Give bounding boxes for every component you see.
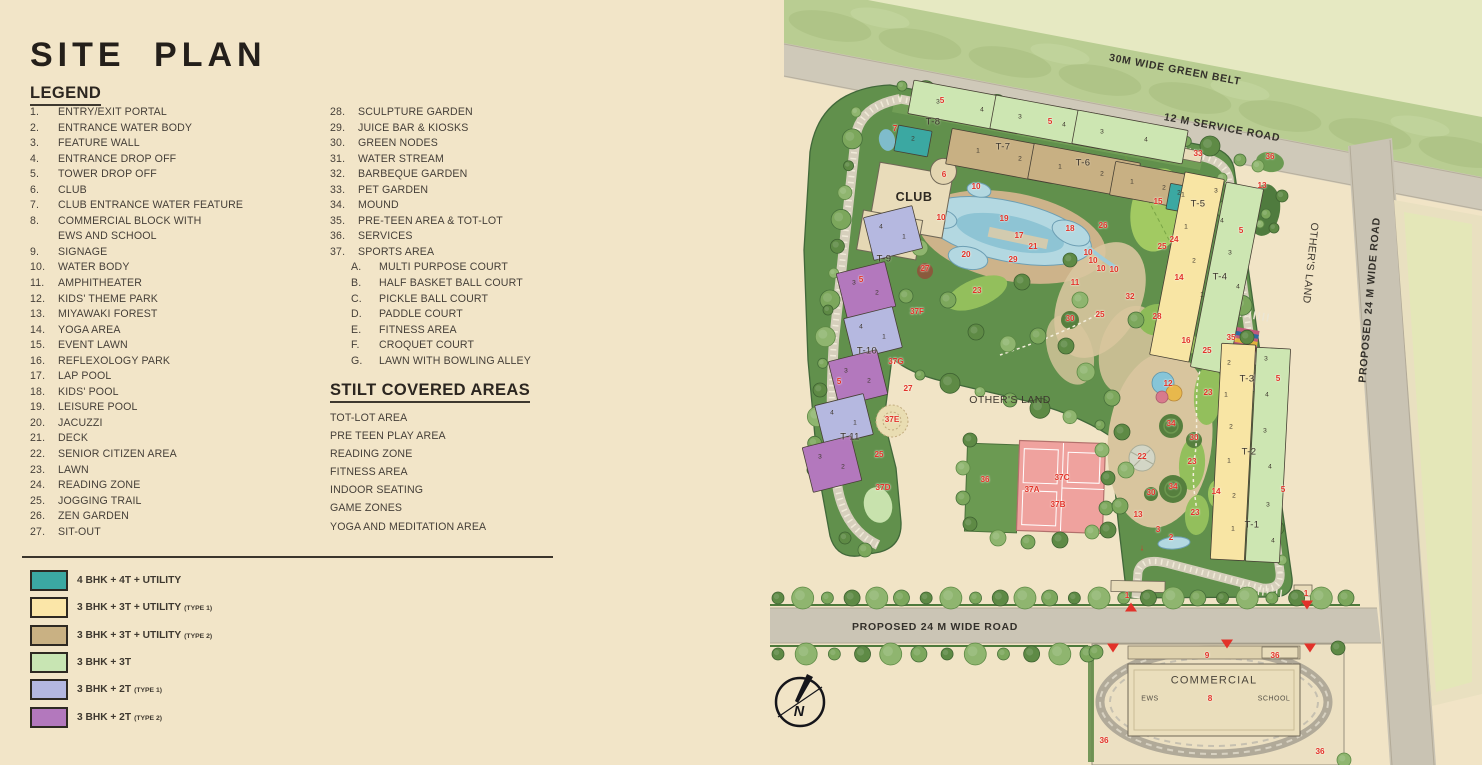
legend-item: 8.COMMERCIAL BLOCK WITH: [30, 215, 325, 231]
map-label-unit: 3: [844, 369, 848, 376]
map-label-unit: 3: [818, 455, 822, 462]
map-label-place: OTHER'S LAND: [969, 395, 1050, 406]
map-label-red: 37B: [1050, 501, 1065, 509]
legend-item: 19.LEISURE POOL: [30, 401, 325, 417]
map-label-unit: 3: [1264, 357, 1268, 364]
legend-item: EWS AND SCHOOL: [30, 230, 325, 246]
map-label-red: 36: [1099, 737, 1108, 745]
unit-type-swatch: [30, 597, 68, 618]
stilt-item: INDOOR SEATING: [330, 484, 530, 502]
map-label-red: 22: [1137, 453, 1146, 461]
map-label-red: 28: [1152, 313, 1161, 321]
map-label-road: 30M WIDE GREEN BELT: [1108, 53, 1242, 88]
map-label-red: 5: [837, 378, 842, 386]
map-label-place: OTHER'S LAND: [1301, 222, 1320, 304]
map-label-red: 5: [859, 276, 864, 284]
map-label-red: 36: [980, 476, 989, 484]
legend-item: 33.PET GARDEN: [330, 184, 575, 200]
legend-item: 24.READING ZONE: [30, 479, 325, 495]
map-label-red: 29: [1008, 256, 1017, 264]
map-label-unit: 2: [911, 137, 915, 144]
map-label-tower: T-8: [926, 117, 941, 127]
map-label-red: 5: [1048, 118, 1053, 126]
map-label-red: 25: [874, 451, 883, 459]
map-label-red: 1: [1125, 592, 1130, 600]
legend-item: 21.DECK: [30, 432, 325, 448]
unit-type-row: 3 BHK + 2T(TYPE 2): [30, 703, 212, 730]
map-label-red: 26: [1098, 222, 1107, 230]
legend-item: G.LAWN WITH BOWLING ALLEY: [351, 355, 575, 371]
map-label-red: 30: [1146, 489, 1155, 497]
unit-type-row: 3 BHK + 3T + UTILITY(TYPE 2): [30, 622, 212, 649]
stilt-item: TOT-LOT AREA: [330, 412, 530, 430]
map-label-red: 37A: [1024, 486, 1039, 494]
legend-item: 14.YOGA AREA: [30, 324, 325, 340]
legend-item: 22.SENIOR CITIZEN AREA: [30, 448, 325, 464]
map-label-unit: 2: [875, 291, 879, 298]
unit-type-row: 3 BHK + 2T(TYPE 1): [30, 676, 212, 703]
map-label-red: 36: [1315, 748, 1324, 756]
legend-item: 17.LAP POOL: [30, 370, 325, 386]
map-label-arrow: ↓: [1140, 544, 1145, 553]
map-label-red: 23: [1203, 389, 1212, 397]
map-label-unit: 2: [1100, 172, 1104, 179]
legend-item: 7.CLUB ENTRANCE WATER FEATURE: [30, 199, 325, 215]
map-label-red: 25: [1157, 243, 1166, 251]
map-label-unit: 2: [841, 465, 845, 472]
legend-item: 31.WATER STREAM: [330, 153, 575, 169]
map-label-tower: T-7: [996, 142, 1011, 152]
map-label-unit: 1: [1058, 165, 1062, 172]
map-label-red: 17: [1014, 232, 1023, 240]
legend-item: 12.KIDS' THEME PARK: [30, 293, 325, 309]
map-label-road: PROPOSED 24 M WIDE ROAD: [852, 622, 1018, 633]
map-label-red: 3: [1156, 526, 1161, 534]
map-label-road: PROPOSED 24 M WIDE ROAD: [1358, 217, 1383, 383]
legend-item: 9.SIGNAGE: [30, 246, 325, 262]
map-label-unit: 3: [1100, 130, 1104, 137]
map-label-red: 19: [999, 215, 1008, 223]
legend-item: 34.MOUND: [330, 199, 575, 215]
legend-item: 23.LAWN: [30, 464, 325, 480]
legend-item: F.CROQUET COURT: [351, 339, 575, 355]
map-label-red: 23: [1190, 509, 1199, 517]
map-label-tower: T-2: [1242, 447, 1257, 457]
map-label-small: EWS: [1141, 696, 1158, 703]
map-label-unit: 4: [1265, 393, 1269, 400]
map-label-red: 14: [1211, 488, 1220, 496]
map-label-red: 13: [1133, 511, 1142, 519]
map-label-road: 12 M SERVICE ROAD: [1163, 112, 1281, 144]
map-label-red: 8: [1208, 695, 1213, 703]
map-label-unit: 1: [1200, 293, 1204, 300]
legend-item: 6.CLUB: [30, 184, 325, 200]
map-label-red: 37E: [885, 416, 900, 424]
map-label-unit: 2: [1232, 494, 1236, 501]
unit-type-row: 4 BHK + 4T + UTILITY: [30, 567, 212, 594]
map-label-tower: T-5: [1191, 199, 1206, 209]
stilt-covered-areas: STILT COVERED AREAS TOT-LOT AREAPRE TEEN…: [330, 381, 530, 539]
map-label-red: 34: [1166, 420, 1175, 428]
map-label-unit: 3: [1266, 503, 1270, 510]
map-label-red: 34: [1168, 483, 1177, 491]
map-label-unit: 4: [1062, 123, 1066, 130]
legend-item: 3.FEATURE WALL: [30, 137, 325, 153]
map-label-unit: 2: [1227, 361, 1231, 368]
map-label-unit: 4: [1236, 285, 1240, 292]
map-label-red: 6: [942, 171, 947, 179]
entry-marker-triangle: [1301, 601, 1313, 610]
legend-item: A.MULTI PURPOSE COURT: [351, 261, 575, 277]
map-label-unit: 3: [1214, 189, 1218, 196]
map-label-unit: 4: [830, 411, 834, 418]
legend-item: 36.SERVICES: [330, 230, 575, 246]
legend-item: 30.GREEN NODES: [330, 137, 575, 153]
map-label-unit: 3: [1263, 429, 1267, 436]
map-label-red: 30: [1189, 434, 1198, 442]
unit-type-row: 3 BHK + 3T + UTILITY(TYPE 1): [30, 594, 212, 621]
map-label-unit: 2: [1229, 425, 1233, 432]
site-plan-page: SITE PLAN LEGEND 1.ENTRY/EXIT PORTAL2.EN…: [0, 0, 1482, 765]
legend-item: 18.KIDS' POOL: [30, 386, 325, 402]
map-label-red: 10: [971, 183, 980, 191]
map-label-red: 13: [1257, 182, 1266, 190]
map-label-red: 5: [1281, 486, 1286, 494]
map-label-red: 24: [1169, 236, 1178, 244]
map-label-tower: T-9: [877, 254, 892, 264]
map-label-unit: 3: [936, 100, 940, 107]
map-label-red: 30: [1065, 315, 1074, 323]
entry-marker-triangle: [1304, 644, 1316, 653]
map-label-red: 21: [1028, 243, 1037, 251]
map-label-tower: T-11: [840, 432, 860, 442]
map-label-red: 10: [1096, 265, 1105, 273]
map-label-unit: 4: [1268, 465, 1272, 472]
map-label-unit: 2: [1192, 259, 1196, 266]
legend-item: 5.TOWER DROP OFF: [30, 168, 325, 184]
map-label-red: 37C: [1054, 474, 1069, 482]
legend-item: B.HALF BASKET BALL COURT: [351, 277, 575, 293]
stilt-item: YOGA AND MEDITATION AREA: [330, 521, 530, 539]
legend-item: 27.SIT-OUT: [30, 526, 325, 542]
unit-type-row: 3 BHK + 3T: [30, 649, 212, 676]
map-label-unit: 4: [980, 108, 984, 115]
map-label-red: 36: [1270, 652, 1279, 660]
legend-panel: SITE PLAN LEGEND 1.ENTRY/EXIT PORTAL2.EN…: [0, 0, 770, 765]
legend-item: 29.JUICE BAR & KIOSKS: [330, 122, 575, 138]
divider-line: [22, 556, 553, 558]
stilt-item: FITNESS AREA: [330, 466, 530, 484]
unit-type-swatch: [30, 679, 68, 700]
legend-item: 1.ENTRY/EXIT PORTAL: [30, 106, 325, 122]
map-label-unit: 4: [879, 225, 883, 232]
legend-item: 10.WATER BODY: [30, 261, 325, 277]
unit-type-swatch: [30, 625, 68, 646]
map-label-red: 37G: [888, 358, 903, 366]
map-label-red: 33: [1193, 150, 1202, 158]
map-label-unit: 1: [853, 421, 857, 428]
unit-type-swatch: [30, 707, 68, 728]
map-label-unit: 4: [859, 325, 863, 332]
map-label-unit: 2: [867, 379, 871, 386]
map-label-unit: 1: [1224, 393, 1228, 400]
map-label-tower: T-1: [1245, 520, 1260, 530]
stilt-heading: STILT COVERED AREAS: [330, 381, 530, 403]
legend-heading: LEGEND: [30, 84, 101, 106]
map-label-tower: T-4: [1213, 272, 1228, 282]
stilt-list: TOT-LOT AREAPRE TEEN PLAY AREAREADING ZO…: [330, 412, 530, 539]
map-label-red: 23: [1187, 458, 1196, 466]
map-label-red: 36: [1265, 153, 1274, 161]
stilt-item: GAME ZONES: [330, 502, 530, 520]
map-label-red: 32: [1125, 293, 1134, 301]
map-label-red: 5: [940, 97, 945, 105]
map-labels: 30M WIDE GREEN BELT12 M SERVICE ROADPROP…: [770, 0, 1482, 765]
map-label-tower: T-10: [857, 346, 877, 356]
map-label-red: 10: [1109, 266, 1118, 274]
map-label-red: 37F: [910, 308, 924, 316]
map-label-big2: COMMERCIAL: [1171, 676, 1258, 687]
map-label-unit: 3: [852, 281, 856, 288]
unit-type-legend: 4 BHK + 4T + UTILITY3 BHK + 3T + UTILITY…: [30, 567, 212, 731]
map-label-unit: 4: [1144, 138, 1148, 145]
map-label-red: 7: [893, 125, 898, 133]
page-title: SITE PLAN: [30, 36, 267, 75]
map-label-unit: 1: [882, 335, 886, 342]
map-label-unit: 2: [1018, 157, 1022, 164]
legend-item: 15.EVENT LAWN: [30, 339, 325, 355]
legend-item: 13.MIYAWAKI FOREST: [30, 308, 325, 324]
map-label-red: 37D: [875, 484, 890, 492]
stilt-item: PRE TEEN PLAY AREA: [330, 430, 530, 448]
map-label-red: 5: [1239, 227, 1244, 235]
entry-marker-triangle: [1107, 644, 1119, 653]
map-label-red: 12: [1163, 380, 1172, 388]
legend-column-1: 1.ENTRY/EXIT PORTAL2.ENTRANCE WATER BODY…: [30, 106, 325, 541]
map-label-red: 25: [1202, 347, 1211, 355]
map-label-unit: 1: [976, 149, 980, 156]
legend-item: 11.AMPHITHEATER: [30, 277, 325, 293]
map-label-unit: 4: [1271, 539, 1275, 546]
legend-item: 37.SPORTS AREA: [330, 246, 575, 262]
map-label-unit: 1: [1181, 193, 1185, 200]
map-label-red: 16: [1181, 337, 1190, 345]
map-label-unit: 1: [1231, 527, 1235, 534]
entry-marker-triangle: [1125, 603, 1137, 612]
legend-item: 26.ZEN GARDEN: [30, 510, 325, 526]
entry-marker-triangle: [1221, 640, 1233, 649]
map-label-red: 20: [961, 251, 970, 259]
map-label-big: CLUB: [896, 191, 933, 204]
map-label-unit: 1: [1227, 459, 1231, 466]
map-label-unit: 2: [1177, 191, 1181, 198]
legend-item: E.FITNESS AREA: [351, 324, 575, 340]
map-label-small: SCHOOL: [1258, 696, 1291, 703]
map-label-red: 10: [936, 214, 945, 222]
map-label-red: 23: [972, 287, 981, 295]
map-label-red: 1: [1304, 590, 1309, 598]
map-label-tower: T-3: [1240, 374, 1255, 384]
legend-item: 2.ENTRANCE WATER BODY: [30, 122, 325, 138]
legend-item: 25.JOGGING TRAIL: [30, 495, 325, 511]
map-label-unit: 1: [1130, 180, 1134, 187]
map-label-unit: 1: [902, 235, 906, 242]
map-label-red: 15: [1153, 198, 1162, 206]
map-label-red: 25: [1095, 311, 1104, 319]
legend-item: 28.SCULPTURE GARDEN: [330, 106, 575, 122]
map-label-unit: 3: [1018, 115, 1022, 122]
legend-item: 16.REFLEXOLOGY PARK: [30, 355, 325, 371]
unit-type-swatch: [30, 652, 68, 673]
legend-item: 4.ENTRANCE DROP OFF: [30, 153, 325, 169]
unit-type-swatch: [30, 570, 68, 591]
map-label-unit: 4: [1220, 219, 1224, 226]
site-map: 30M WIDE GREEN BELT12 M SERVICE ROADPROP…: [770, 0, 1482, 765]
stilt-item: READING ZONE: [330, 448, 530, 466]
map-label-unit: 2: [1162, 186, 1166, 193]
legend-item: C.PICKLE BALL COURT: [351, 293, 575, 309]
map-label-red: 9: [1205, 652, 1210, 660]
map-label-red: 2: [1169, 534, 1174, 542]
map-label-compass: N: [794, 705, 804, 720]
legend-item: 32.BARBEQUE GARDEN: [330, 168, 575, 184]
map-label-red: 18: [1065, 225, 1074, 233]
map-label-red: 14: [1174, 274, 1183, 282]
map-label-red: 5: [1276, 375, 1281, 383]
legend-item: 35.PRE-TEEN AREA & TOT-LOT: [330, 215, 575, 231]
map-label-red: 11: [1071, 279, 1080, 287]
map-label-red: 27: [903, 385, 912, 393]
map-label-red: 27: [920, 265, 929, 273]
legend-item: D.PADDLE COURT: [351, 308, 575, 324]
map-label-unit: 3: [1228, 251, 1232, 258]
map-label-tower: T-6: [1076, 158, 1091, 168]
legend-column-2: 28.SCULPTURE GARDEN29.JUICE BAR & KIOSKS…: [330, 106, 575, 370]
map-label-unit: 1: [1184, 225, 1188, 232]
map-label-red: 35: [1226, 334, 1235, 342]
legend-item: 20.JACUZZI: [30, 417, 325, 433]
